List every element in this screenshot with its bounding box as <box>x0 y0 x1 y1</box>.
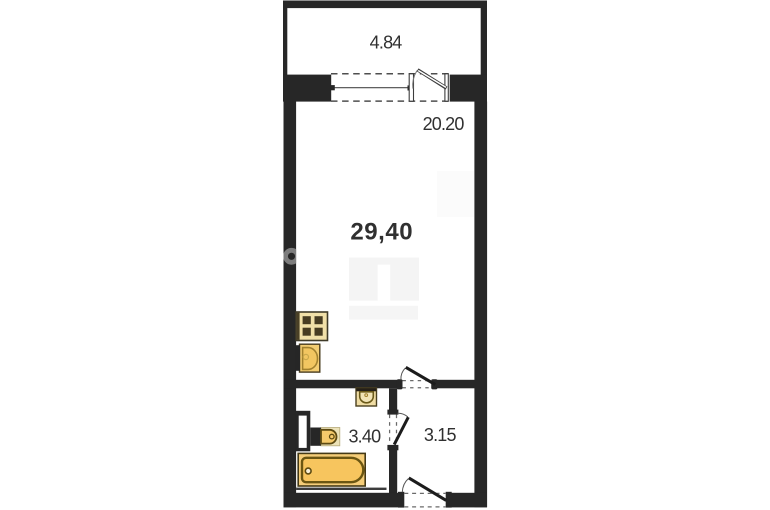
svg-text:20.20: 20.20 <box>423 114 465 134</box>
svg-text:4.84: 4.84 <box>370 33 403 53</box>
svg-text:3.40: 3.40 <box>348 426 381 446</box>
svg-text:3.15: 3.15 <box>424 425 457 445</box>
svg-text:29,40: 29,40 <box>350 218 413 245</box>
